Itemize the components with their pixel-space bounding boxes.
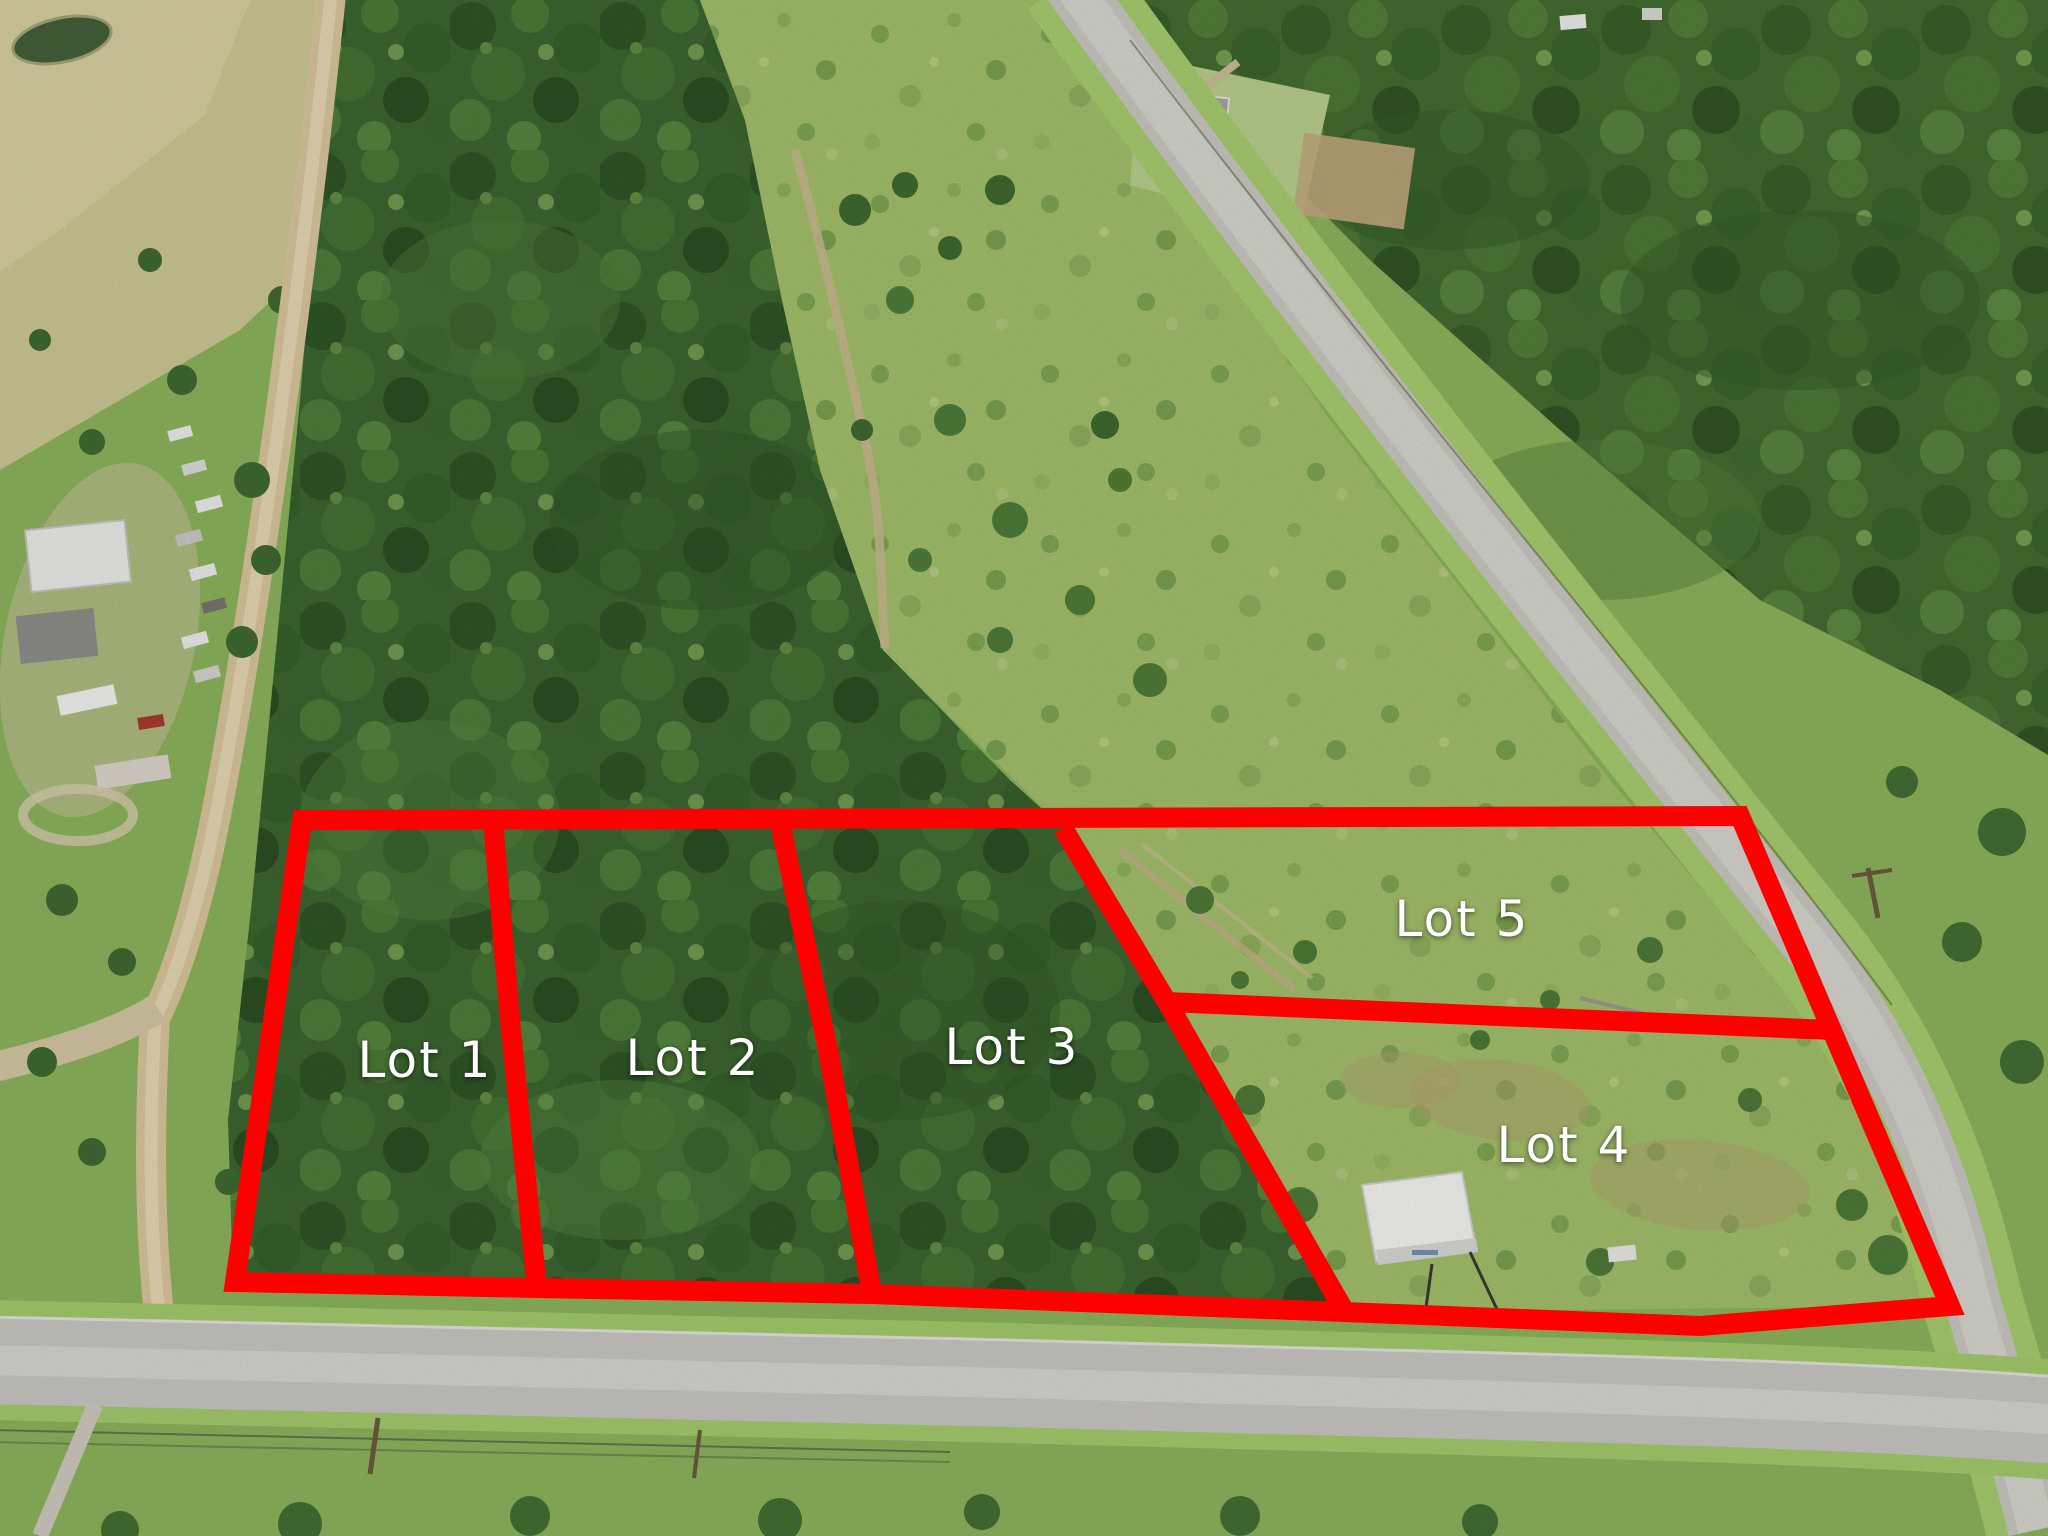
- lot-2-label: Lot 2: [626, 1029, 761, 1087]
- lot-1-label: Lot 1: [358, 1031, 493, 1089]
- aerial-photo: [0, 0, 2048, 1536]
- lot-3-label: Lot 3: [945, 1018, 1080, 1076]
- lot-5-label: Lot 5: [1395, 890, 1530, 948]
- lot-4-label: Lot 4: [1497, 1116, 1632, 1174]
- aerial-lot-map: Lot 1 Lot 2 Lot 3 Lot 4 Lot 5: [0, 0, 2048, 1536]
